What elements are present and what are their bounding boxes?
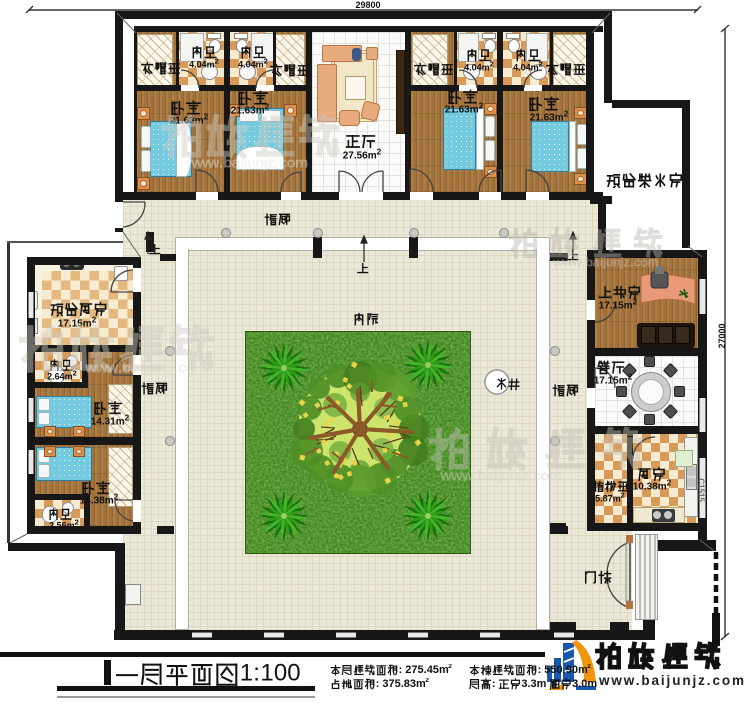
svg-text:z: z — [267, 155, 275, 171]
svg-text:m: m — [416, 678, 426, 690]
svg-text:0: 0 — [287, 661, 300, 686]
svg-text:0: 0 — [274, 661, 287, 686]
svg-text:m: m — [647, 256, 658, 270]
svg-text:w: w — [461, 468, 474, 484]
svg-text:3: 3 — [521, 678, 527, 690]
svg-text:5: 5 — [550, 664, 556, 676]
svg-text:u: u — [146, 360, 155, 376]
svg-text:w: w — [571, 256, 583, 270]
svg-text:0: 0 — [572, 664, 578, 676]
svg-text:c: c — [634, 256, 641, 270]
svg-text:2: 2 — [587, 664, 591, 670]
svg-text:3: 3 — [382, 678, 388, 690]
svg-text:.: . — [275, 155, 279, 171]
svg-text:0: 0 — [581, 678, 587, 690]
svg-text::: : — [376, 678, 380, 690]
svg-text:u: u — [501, 468, 510, 484]
svg-text:a: a — [592, 256, 600, 270]
svg-text:z: z — [521, 468, 529, 484]
svg-text:n: n — [255, 155, 264, 171]
svg-text:m: m — [537, 678, 547, 690]
svg-text:a: a — [485, 468, 494, 484]
svg-text:b: b — [477, 468, 486, 484]
svg-text:m: m — [295, 155, 308, 171]
svg-text:w: w — [440, 468, 452, 484]
svg-text:c: c — [279, 155, 287, 171]
svg-text:.: . — [529, 468, 533, 484]
svg-text:o: o — [185, 360, 194, 376]
svg-text:w: w — [106, 360, 119, 376]
svg-text:w: w — [196, 155, 209, 171]
svg-text:1: 1 — [260, 661, 273, 686]
svg-text:w: w — [562, 256, 574, 270]
svg-text:w: w — [207, 155, 220, 171]
svg-text:m: m — [578, 664, 588, 676]
svg-text:u: u — [247, 155, 256, 171]
svg-text:w: w — [450, 468, 463, 484]
svg-text:w: w — [186, 155, 198, 171]
svg-text::: : — [253, 661, 260, 686]
svg-text:7: 7 — [388, 678, 394, 690]
svg-text:9: 9 — [566, 664, 572, 676]
svg-text:3: 3 — [410, 678, 416, 690]
svg-text:u: u — [606, 256, 614, 270]
svg-text:m: m — [549, 468, 562, 484]
svg-text:.: . — [578, 678, 581, 690]
svg-text:n: n — [509, 468, 518, 484]
svg-text:3: 3 — [572, 678, 578, 690]
svg-text:1: 1 — [240, 661, 253, 686]
svg-text:.: . — [219, 155, 223, 171]
svg-text:5: 5 — [417, 664, 423, 676]
svg-text:8: 8 — [404, 678, 410, 690]
svg-text:2: 2 — [405, 664, 411, 676]
svg-text:a: a — [231, 155, 240, 171]
svg-text:0: 0 — [557, 664, 563, 676]
svg-text:o: o — [640, 256, 648, 270]
svg-text:4: 4 — [427, 664, 434, 676]
svg-text:o: o — [286, 155, 295, 171]
svg-text:.: . — [630, 256, 634, 270]
svg-text:5: 5 — [395, 678, 401, 690]
svg-text:z: z — [623, 256, 630, 270]
svg-text::: : — [492, 678, 496, 690]
svg-text:c: c — [533, 468, 541, 484]
svg-text:.: . — [174, 360, 178, 376]
svg-text:w: w — [85, 360, 97, 376]
svg-text:.: . — [473, 468, 477, 484]
svg-text:n: n — [154, 360, 163, 376]
svg-text:2: 2 — [425, 678, 429, 684]
svg-text:w: w — [553, 256, 564, 270]
svg-text:n: n — [613, 256, 621, 270]
svg-text:2: 2 — [448, 664, 452, 670]
svg-text:c: c — [178, 360, 186, 376]
svg-text:b: b — [223, 155, 232, 171]
svg-text:b: b — [585, 256, 593, 270]
svg-text:b: b — [122, 360, 131, 376]
svg-text:7: 7 — [411, 664, 417, 676]
svg-text::: : — [538, 664, 542, 676]
svg-text:.: . — [527, 678, 530, 690]
svg-text::: : — [399, 664, 403, 676]
svg-text:5: 5 — [433, 664, 439, 676]
svg-text:3: 3 — [531, 678, 537, 690]
svg-text:5: 5 — [544, 664, 550, 676]
svg-text:m: m — [587, 678, 596, 690]
svg-text:.: . — [401, 678, 404, 690]
svg-text:.: . — [581, 256, 585, 270]
svg-text:z: z — [166, 360, 174, 376]
svg-text:m: m — [194, 360, 207, 376]
svg-text:.: . — [118, 360, 122, 376]
svg-text:o: o — [540, 468, 549, 484]
svg-text:m: m — [439, 664, 449, 676]
svg-text:.: . — [563, 664, 566, 676]
svg-text:.: . — [424, 664, 427, 676]
svg-text:w: w — [95, 360, 108, 376]
svg-text:a: a — [130, 360, 139, 376]
